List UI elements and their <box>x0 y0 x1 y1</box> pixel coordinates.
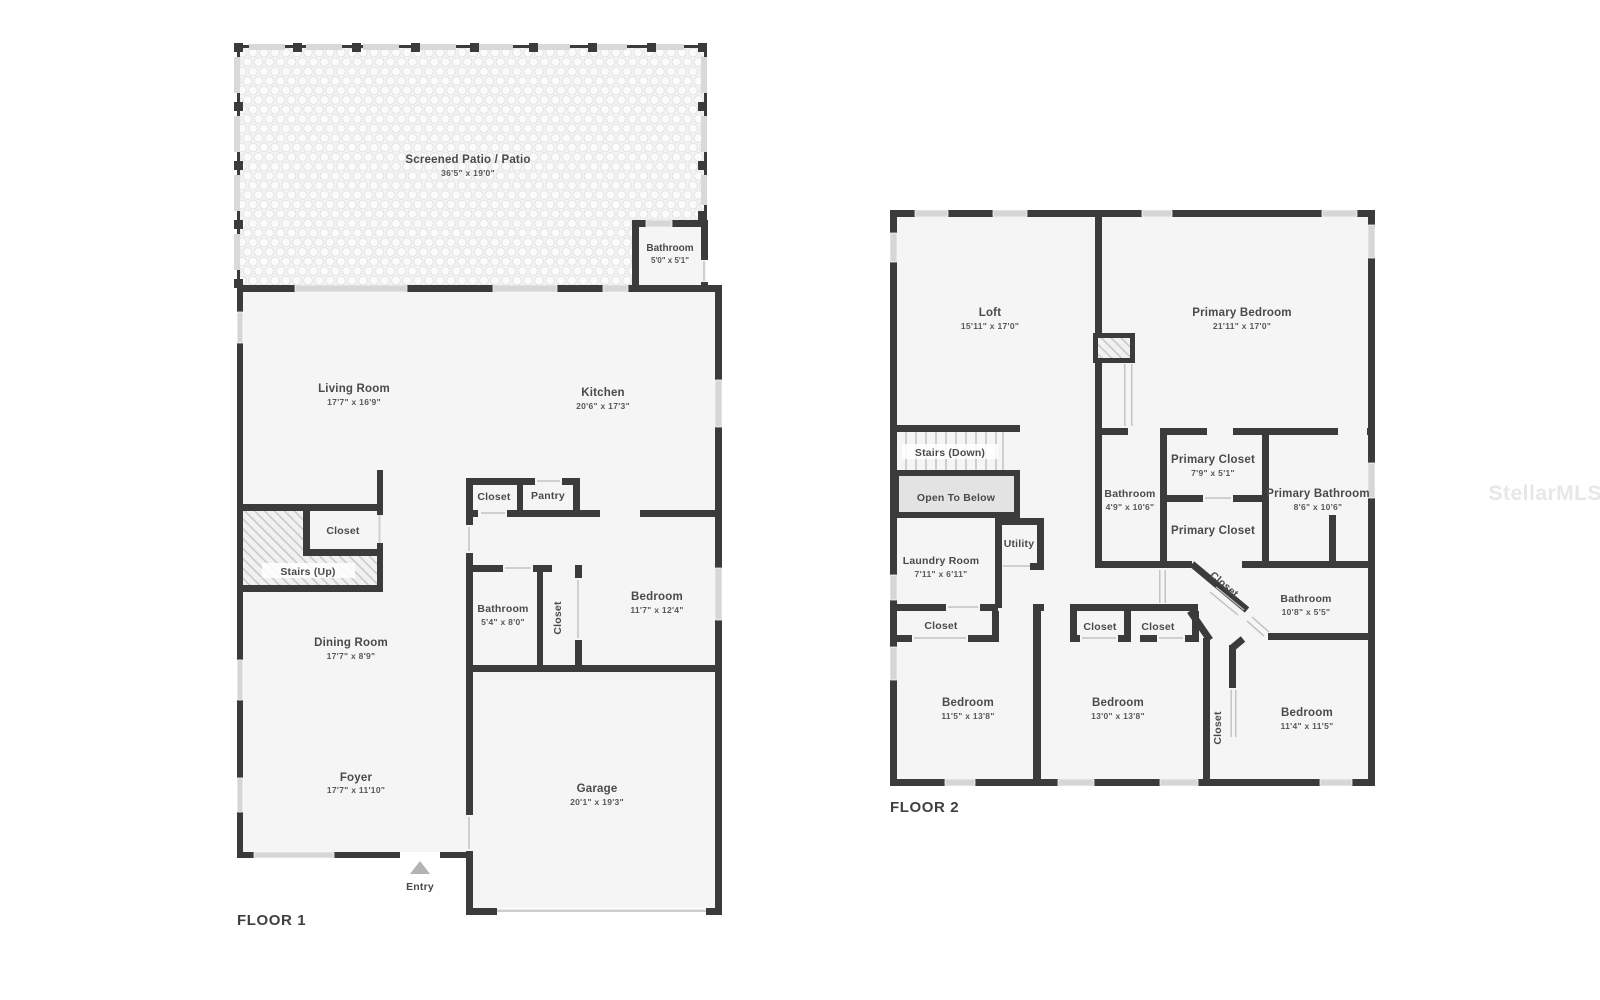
floor1-entry-label: Entry <box>406 881 434 893</box>
floor1-living-room-dims: 17'7" x 16'9" <box>327 397 381 407</box>
floor1-bathroom-label: Bathroom <box>477 603 528 615</box>
floor2: Loft 15'11" x 17'0" Primary Bedroom 21'1… <box>890 210 1375 816</box>
floorplan-canvas: Screened Patio / Patio 36'5" x 19'0" Bat… <box>0 0 1600 1000</box>
floor1-bathroom-dims: 5'4" x 8'0" <box>481 617 525 627</box>
floor2-bedroom2-label: Bedroom <box>1092 697 1144 709</box>
floor2-bedroom1-label: Bedroom <box>942 697 994 709</box>
floor2-bathroom-right-dims: 10'8" x 5'5" <box>1282 607 1331 617</box>
floor1-bedroom-closet-label: Closet <box>552 601 564 635</box>
floor2-title: FLOOR 2 <box>890 799 959 816</box>
floor2-loft-dims: 15'11" x 17'0" <box>961 321 1019 331</box>
watermark: StellarMLS <box>1488 482 1600 505</box>
floor2-bedroom3-closet-label: Closet <box>1212 711 1224 745</box>
floor2-primary-bathroom-label: Primary Bathroom <box>1266 488 1370 500</box>
floor1-dining-room-label: Dining Room <box>314 637 388 649</box>
floor2-utility-label: Utility <box>1004 538 1035 550</box>
floor1-dining-room-dims: 17'7" x 8'9" <box>327 651 376 661</box>
floor2-bedroom3-dims: 11'4" x 11'5" <box>1281 721 1334 731</box>
floor1-patio-dims: 36'5" x 19'0" <box>441 168 495 178</box>
floor2-bedroom1-dims: 11'5" x 13'8" <box>941 711 994 721</box>
floor1-bedroom-label: Bedroom <box>631 591 683 603</box>
floor2-stairs-down-label: Stairs (Down) <box>915 447 985 459</box>
floor1-hall-closet-label: Closet <box>477 491 511 503</box>
floor1-living-room-label: Living Room <box>318 383 390 395</box>
floor1-bedroom-dims: 11'7" x 12'4" <box>630 605 683 615</box>
floor2-primary-bedroom-dims: 21'11" x 17'0" <box>1213 321 1271 331</box>
floor1-kitchen-label: Kitchen <box>581 387 625 399</box>
floor1-pantry-label: Pantry <box>531 490 565 502</box>
floorplan-page: Screened Patio / Patio 36'5" x 19'0" Bat… <box>0 0 1600 1000</box>
floor2-primary-closet-upper-label: Primary Closet <box>1171 454 1255 466</box>
floor2-loft-label: Loft <box>979 307 1002 319</box>
floor2-bathroom-right-label: Bathroom <box>1280 593 1331 605</box>
floor1-patio-bathroom-label: Bathroom <box>646 243 693 254</box>
floor2-laundry-label: Laundry Room <box>903 555 980 567</box>
floor1-garage-label: Garage <box>577 783 618 795</box>
floor2-open-to-below-label: Open To Below <box>917 492 996 504</box>
floor2-primary-closet-upper-dims: 7'9" x 5'1" <box>1191 468 1235 478</box>
floor2-bedroom3-label: Bedroom <box>1281 707 1333 719</box>
floor2-bedroom2-closet-a-label: Closet <box>1083 621 1117 633</box>
floor2-primary-bathroom-dims: 8'6" x 10'6" <box>1294 502 1343 512</box>
floor2-bedroom2-closet-b-label: Closet <box>1141 621 1175 633</box>
floor1-foyer-dims: 17'7" x 11'10" <box>327 785 385 795</box>
floor2-bedroom2-dims: 13'0" x 13'8" <box>1091 711 1145 721</box>
floor2-primary-closet-lower-label: Primary Closet <box>1171 525 1255 537</box>
floor1-stairs-label: Stairs (Up) <box>280 566 335 578</box>
floor1-title: FLOOR 1 <box>237 912 306 929</box>
floor1-garage-dims: 20'1" x 19'3" <box>570 797 624 807</box>
floor1-patio-bathroom-dims: 5'0" x 5'1" <box>651 256 689 265</box>
floor1-kitchen-dims: 20'6" x 17'3" <box>576 401 630 411</box>
floor2-primary-bedroom-label: Primary Bedroom <box>1192 307 1292 319</box>
floor2-bathroom-mid-dims: 4'9" x 10'6" <box>1106 502 1155 512</box>
floor1-patio-label: Screened Patio / Patio <box>405 154 530 166</box>
floor1-foyer-label: Foyer <box>340 772 373 784</box>
floor2-laundry-dims: 7'11" x 6'11" <box>915 569 968 579</box>
entry-arrow-icon <box>410 861 430 874</box>
floor1: Screened Patio / Patio 36'5" x 19'0" Bat… <box>234 43 722 929</box>
floor1-stair-closet-label: Closet <box>326 525 360 537</box>
floor2-bathroom-mid-label: Bathroom <box>1104 488 1155 500</box>
floor2-bedroom1-closet-label: Closet <box>924 620 958 632</box>
